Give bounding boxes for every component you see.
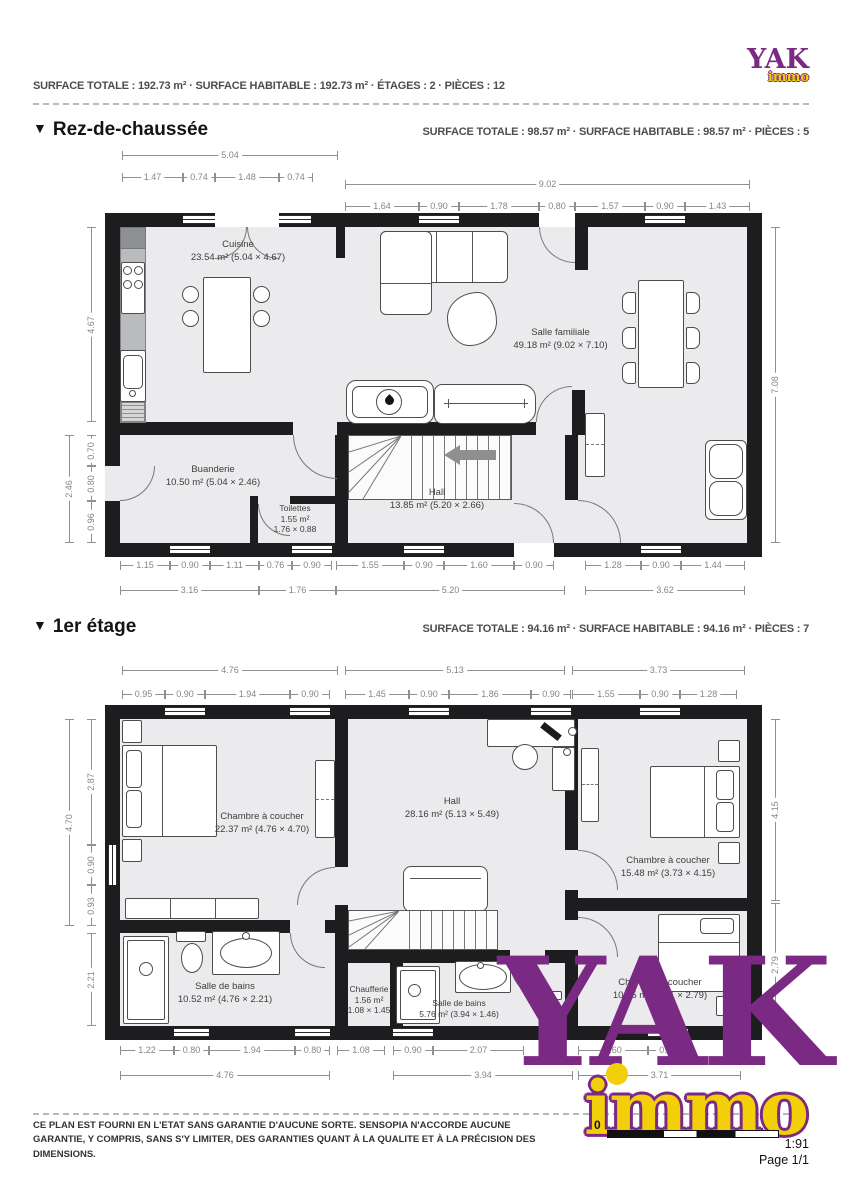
- dimension: 4.76: [122, 665, 338, 675]
- dimension: 1.28: [585, 560, 641, 570]
- stairs-winder: [349, 911, 399, 949]
- window: [645, 215, 685, 224]
- sink-basin: [123, 355, 143, 389]
- dimension: 1.57: [575, 201, 645, 211]
- window: [183, 215, 215, 224]
- sofa-cushion-line: [436, 232, 437, 282]
- room-name: Toilettes: [255, 503, 335, 514]
- wall-segment: [747, 213, 762, 557]
- dimension-label: 1.44: [701, 560, 725, 570]
- chair: [622, 292, 636, 314]
- wardrobe-divider: [582, 784, 598, 785]
- dresser-divider: [170, 899, 171, 918]
- dimension-label: 1.28: [601, 560, 625, 570]
- room-area: 23.54 m² (5.04 × 4.67): [158, 252, 318, 265]
- dimension-label: 0.96: [86, 510, 96, 534]
- dimension: 1.94: [209, 1045, 295, 1055]
- chair: [686, 327, 700, 349]
- dimension-label: 0.90: [522, 560, 546, 570]
- pillow: [126, 750, 142, 788]
- wall-segment: [565, 435, 578, 500]
- dimension: 0.70: [86, 435, 96, 466]
- dimension-label: 1.76: [286, 585, 310, 595]
- dimension: 0.90: [409, 689, 449, 699]
- dimension: 3.62: [585, 585, 745, 595]
- dimension: 1.22: [120, 1045, 174, 1055]
- wall-segment: [105, 422, 293, 435]
- pillow: [716, 770, 734, 800]
- chair: [686, 292, 700, 314]
- sofa: [403, 866, 488, 912]
- dimension: 2.46: [64, 435, 74, 543]
- document-summary: SURFACE TOTALE : 192.73 m² · SURFACE HAB…: [33, 80, 505, 92]
- dimension: 1.11: [210, 560, 259, 570]
- dimension-label: 3.62: [653, 585, 677, 595]
- wardrobe: [585, 413, 605, 477]
- room-name: Hall: [372, 796, 532, 809]
- wall-segment: [578, 898, 747, 911]
- pillow: [716, 802, 734, 832]
- triangle-down-icon: ▼: [33, 617, 47, 633]
- chair: [253, 286, 270, 303]
- window: [419, 215, 459, 224]
- tap: [242, 932, 250, 940]
- stove-burner: [134, 266, 143, 275]
- dimension-label: 0.90: [298, 689, 322, 699]
- dimension: 1.76: [259, 585, 336, 595]
- dimension-label: 1.15: [133, 560, 157, 570]
- dimension-label: 7.08: [770, 373, 780, 397]
- stairs-direction-arrow-head: [444, 445, 460, 465]
- dimension: 4.70: [64, 719, 74, 926]
- nightstand: [122, 720, 142, 743]
- sofa-back-line: [410, 878, 481, 879]
- room-area: 1.56 m²: [338, 995, 400, 1006]
- loveseat-cushion: [709, 444, 743, 479]
- blanket-line: [162, 746, 163, 836]
- dimension-label: 0.76: [264, 560, 288, 570]
- dimension: 0.90: [290, 689, 330, 699]
- dimension: 0.76: [259, 560, 292, 570]
- window: [108, 845, 117, 885]
- wardrobe-divider: [316, 799, 334, 800]
- window: [404, 545, 444, 554]
- blanket-line: [704, 767, 705, 837]
- dimension-label: 2.07: [467, 1045, 491, 1055]
- sink-tap: [129, 390, 136, 397]
- chair: [686, 362, 700, 384]
- dimension-label: 0.90: [427, 201, 451, 211]
- dimension: 3.73: [572, 665, 745, 675]
- room-area: 15.48 m² (3.73 × 4.15): [588, 868, 748, 881]
- floor1-title: ▼Rez-de-chaussée: [33, 119, 208, 141]
- dimension-label: 0.90: [300, 560, 324, 570]
- dimension-label: 1.28: [697, 689, 721, 699]
- wardrobe-divider: [586, 444, 604, 445]
- dimension-label: 4.76: [218, 665, 242, 675]
- desk-lamp: [568, 727, 577, 736]
- room-name: Cuisine: [158, 239, 318, 252]
- window: [393, 1028, 433, 1037]
- wall-segment: [105, 501, 120, 557]
- dimension: 1.86: [449, 689, 531, 699]
- page-number: Page 1/1: [759, 1153, 809, 1167]
- dimension: 1.55: [336, 560, 404, 570]
- dimension: 1.64: [345, 201, 419, 211]
- sofa-sectional: [380, 231, 432, 315]
- room-name: Salle de bains: [145, 981, 305, 994]
- tap: [477, 962, 484, 969]
- window: [531, 707, 571, 716]
- dimension-label: 3.16: [178, 585, 202, 595]
- dimension: 0.95: [122, 689, 165, 699]
- yak-immo-logo: YAK immo: [747, 46, 809, 84]
- nightstand: [718, 740, 740, 762]
- stove-burner: [123, 266, 132, 275]
- dimension-label: 0.90: [86, 853, 96, 877]
- kitchen-table: [203, 277, 251, 373]
- dimension: 0.90: [514, 560, 554, 570]
- dimension-label: 0.90: [653, 201, 677, 211]
- bench-rail: [444, 403, 528, 404]
- scale-ratio: 1:91: [785, 1137, 809, 1151]
- dresser-divider: [215, 899, 216, 918]
- wall-segment: [565, 890, 578, 920]
- room-area: 10.50 m² (5.04 × 2.46): [133, 477, 293, 490]
- toilet-tank: [176, 931, 206, 942]
- room-label-hall: Hall 13.85 m² (5.20 × 2.66): [357, 487, 517, 513]
- window: [292, 545, 332, 554]
- floor2-title-text: 1er étage: [53, 616, 136, 637]
- dimension: 5.13: [345, 665, 565, 675]
- bench-rail-tick: [524, 399, 525, 408]
- room-dims: 1.08 × 1.45: [338, 1005, 400, 1016]
- dimension: 0.90: [86, 845, 96, 885]
- nightstand: [122, 839, 142, 862]
- dimension: 0.90: [531, 689, 571, 699]
- wall-segment: [335, 705, 348, 867]
- loveseat-cushion: [709, 481, 743, 516]
- dimension: 1.60: [444, 560, 514, 570]
- dimension: 0.80: [174, 1045, 209, 1055]
- washbasin: [220, 938, 272, 968]
- room-name: Chambre à coucher: [182, 811, 342, 824]
- dimension: 0.90: [419, 201, 459, 211]
- dimension: 1.94: [205, 689, 290, 699]
- dimension-label: 1.11: [223, 560, 246, 570]
- floor2-title: ▼1er étage: [33, 616, 136, 638]
- dimension-label: 0.80: [86, 472, 96, 496]
- dimension-label: 4.70: [64, 811, 74, 835]
- bench: [434, 384, 536, 424]
- wall-segment: [572, 390, 585, 435]
- window: [174, 1028, 209, 1037]
- floor2-summary: SURFACE TOTALE : 94.16 m² · SURFACE HABI…: [422, 623, 809, 635]
- dimension-label: 0.74: [187, 172, 211, 182]
- shower-drain: [408, 984, 421, 997]
- dimension: 1.47: [122, 172, 183, 182]
- dimension: 0.90: [641, 560, 681, 570]
- dimension: 0.90: [640, 689, 680, 699]
- sofa-cushion-line: [472, 232, 473, 282]
- mouse: [563, 748, 571, 756]
- chair: [622, 362, 636, 384]
- dimension: 0.90: [393, 1045, 433, 1055]
- sofa-cushion-line: [381, 283, 431, 284]
- dimension-label: 0.93: [86, 894, 96, 918]
- dimension: 1.44: [681, 560, 745, 570]
- dimension-label: 0.90: [649, 560, 673, 570]
- room-label-toilettes: Toilettes 1.55 m² 1.76 × 0.88: [255, 503, 335, 535]
- dimension-label: 1.55: [358, 560, 382, 570]
- chair: [182, 286, 199, 303]
- dimension-label: 0.74: [284, 172, 308, 182]
- door-opening: [514, 543, 554, 557]
- wardrobe: [581, 748, 599, 822]
- dimension-label: 1.60: [467, 560, 491, 570]
- stairs-direction-arrow: [460, 450, 496, 460]
- window: [170, 545, 210, 554]
- room-name: Salle familiale: [478, 327, 643, 340]
- dimension-label: 2.46: [64, 477, 74, 501]
- dimension: 4.76: [120, 1070, 330, 1080]
- dimension-label: 5.13: [443, 665, 467, 675]
- room-label-cuisine: Cuisine 23.54 m² (5.04 × 4.67): [158, 239, 318, 265]
- dimension: 1.78: [459, 201, 539, 211]
- room-area: 49.18 m² (9.02 × 7.10): [478, 340, 643, 353]
- dimension: 0.80: [539, 201, 575, 211]
- door-opening: [539, 213, 575, 227]
- stairs: [348, 910, 498, 950]
- room-label-hall2: Hall 28.16 m² (5.13 × 5.49): [372, 796, 532, 822]
- dimension-label: 1.48: [235, 172, 259, 182]
- dimension-label: 1.43: [706, 201, 730, 211]
- door-opening: [215, 213, 279, 227]
- dimension-label: 1.22: [135, 1045, 159, 1055]
- dimension: 0.93: [86, 885, 96, 926]
- room-name: Hall: [357, 487, 517, 500]
- dimension: 1.28: [680, 689, 737, 699]
- window: [165, 707, 205, 716]
- dimension-label: 0.95: [132, 689, 156, 699]
- window: [640, 707, 680, 716]
- dimension-label: 5.04: [218, 150, 242, 160]
- dimension-label: 1.64: [370, 201, 394, 211]
- dimension-label: 4.76: [213, 1070, 237, 1080]
- dimension: 2.21: [86, 933, 96, 1026]
- room-label-chambre2: Chambre à coucher 15.48 m² (3.73 × 4.15): [588, 855, 748, 881]
- disclaimer-text: CE PLAN EST FOURNI EN L'ETAT SANS GARANT…: [33, 1119, 548, 1162]
- dimension-label: 1.94: [240, 1045, 264, 1055]
- dimension: 1.45: [345, 689, 409, 699]
- dimension: 0.80: [295, 1045, 330, 1055]
- wall-segment: [325, 920, 348, 933]
- dashed-separator: [33, 103, 809, 105]
- dimension: 0.90: [165, 689, 205, 699]
- dimension-label: 0.90: [539, 689, 563, 699]
- pillow: [126, 790, 142, 828]
- dimension-label: 1.47: [141, 172, 165, 182]
- dimension-label: 0.90: [401, 1045, 425, 1055]
- shower-tray: [127, 940, 165, 1020]
- room-name: Buanderie: [133, 464, 293, 477]
- dimension-label: 1.86: [478, 689, 502, 699]
- window: [290, 707, 330, 716]
- shower-drain: [139, 962, 153, 976]
- floor1-summary: SURFACE TOTALE : 98.57 m² · SURFACE HABI…: [422, 126, 809, 138]
- logo-yak-text: YAK: [747, 46, 809, 73]
- dimension-label: 9.02: [536, 179, 560, 189]
- wall-segment: [336, 213, 345, 258]
- dimension-label: 0.80: [180, 1045, 204, 1055]
- dimension: 0.90: [404, 560, 444, 570]
- fridge: [120, 227, 146, 249]
- dining-table: [638, 280, 684, 388]
- dimension-label: 0.90: [178, 560, 202, 570]
- room-dims: 1.76 × 0.88: [255, 524, 335, 535]
- dimension-label: 3.73: [647, 665, 671, 675]
- dimension: 1.48: [215, 172, 279, 182]
- dimension: 1.43: [685, 201, 750, 211]
- dimension-label: 1.94: [236, 689, 260, 699]
- stairs-treads: [399, 911, 497, 949]
- dimension-label: 1.78: [487, 201, 511, 211]
- floor1-title-text: Rez-de-chaussée: [53, 119, 208, 140]
- dimension: 0.74: [279, 172, 313, 182]
- room-area: 22.37 m² (4.76 × 4.70): [182, 824, 342, 837]
- dimension-label: 0.80: [545, 201, 569, 211]
- dimension-label: 1.57: [598, 201, 622, 211]
- dimension-label: 0.70: [86, 439, 96, 463]
- dimension-label: 0.90: [648, 689, 672, 699]
- triangle-down-icon: ▼: [33, 120, 47, 136]
- scale-bar: [607, 1130, 779, 1138]
- dimension-label: 4.15: [770, 798, 780, 822]
- dimension: 2.87: [86, 719, 96, 845]
- dishwasher: [121, 402, 145, 422]
- dimension-label: 1.55: [594, 689, 618, 699]
- dimension: 9.02: [345, 179, 750, 189]
- room-area: 28.16 m² (5.13 × 5.49): [372, 809, 532, 822]
- page: SURFACE TOTALE : 192.73 m² · SURFACE HAB…: [0, 0, 842, 1200]
- room-label-salle-de-bains1: Salle de bains 10.52 m² (4.76 × 2.21): [145, 981, 305, 1007]
- dimension: 0.96: [86, 501, 96, 543]
- scale-zero-label: 0: [594, 1118, 601, 1132]
- toilet: [181, 943, 203, 973]
- dimension-label: 0.80: [301, 1045, 325, 1055]
- window: [641, 545, 681, 554]
- dimension-label: 4.67: [86, 313, 96, 337]
- dimension-label: 5.20: [439, 585, 463, 595]
- window: [279, 215, 311, 224]
- dimension-label: 0.90: [173, 689, 197, 699]
- room-area: 13.85 m² (5.20 × 2.66): [357, 500, 517, 513]
- dimension: 0.80: [86, 466, 96, 501]
- dimension-label: 1.45: [365, 689, 389, 699]
- dimension: 1.55: [572, 689, 640, 699]
- dimension-label: 3.94: [471, 1070, 495, 1080]
- room-area: 1.55 m²: [255, 514, 335, 525]
- room-area: 10.52 m² (4.76 × 2.21): [145, 994, 305, 1007]
- dimension: 1.08: [337, 1045, 385, 1055]
- room-label-chambre1: Chambre à coucher 22.37 m² (4.76 × 4.70): [182, 811, 342, 837]
- dimension-label: 0.90: [412, 560, 436, 570]
- dimension-label: 0.90: [417, 689, 441, 699]
- dimension: 0.90: [645, 201, 685, 211]
- window: [409, 707, 449, 716]
- room-name: Chaufferie: [338, 984, 400, 995]
- dimension: 0.90: [170, 560, 210, 570]
- dimension: 4.67: [86, 227, 96, 422]
- stove-burner: [134, 280, 143, 289]
- dimension: 1.15: [120, 560, 170, 570]
- dimension: 0.90: [292, 560, 332, 570]
- stove-burner: [123, 280, 132, 289]
- dimension: 4.15: [770, 719, 780, 901]
- dimension: 5.04: [122, 150, 338, 160]
- dimension-label: 1.08: [349, 1045, 373, 1055]
- bench-rail-tick: [448, 399, 449, 408]
- dimension-label: 2.87: [86, 770, 96, 794]
- dimension-label: 2.21: [86, 968, 96, 992]
- dimension: 7.08: [770, 227, 780, 543]
- dimension: 3.16: [120, 585, 259, 595]
- desk: [487, 719, 575, 747]
- chair: [253, 310, 270, 327]
- room-label-buanderie: Buanderie 10.50 m² (5.04 × 2.46): [133, 464, 293, 490]
- room-label-chaufferie: Chaufferie 1.56 m² 1.08 × 1.45: [338, 984, 400, 1016]
- wall-segment: [575, 227, 588, 270]
- office-chair: [512, 744, 538, 770]
- room-name: Chambre à coucher: [588, 855, 748, 868]
- dimension: 5.20: [336, 585, 565, 595]
- room-label-salle-familiale: Salle familiale 49.18 m² (9.02 × 7.10): [478, 327, 643, 353]
- dresser: [125, 898, 259, 919]
- chair: [182, 310, 199, 327]
- window: [295, 1028, 330, 1037]
- dimension: 0.74: [183, 172, 215, 182]
